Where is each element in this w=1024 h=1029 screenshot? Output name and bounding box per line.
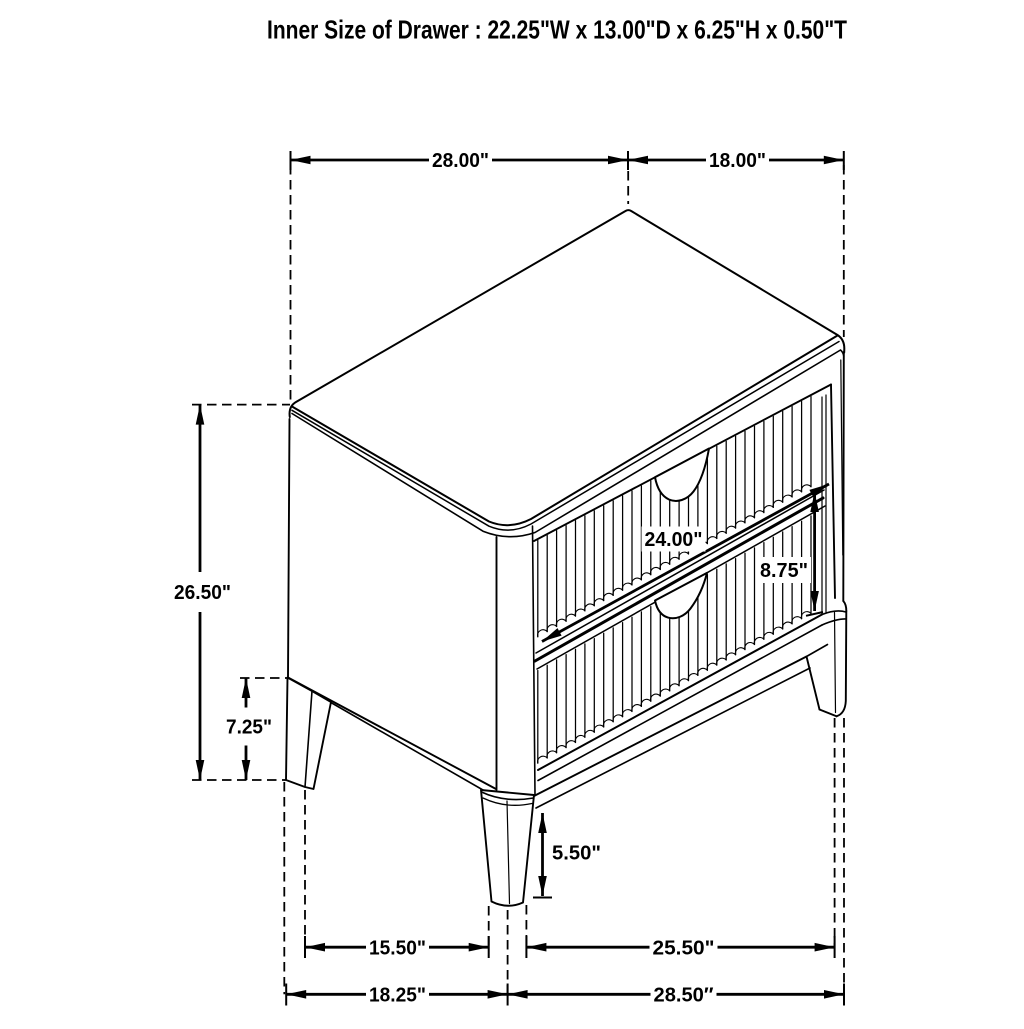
svg-text:24.00": 24.00" [645,528,703,551]
svg-text:28.50″: 28.50″ [654,984,714,1007]
svg-text:15.50": 15.50" [369,936,426,959]
svg-text:Inner Size of Drawer : 22.25"W: Inner Size of Drawer : 22.25"W x 13.00"D… [267,15,847,45]
svg-text:26.50": 26.50" [174,581,231,604]
svg-text:7.25": 7.25" [226,716,272,739]
svg-text:25.50": 25.50" [653,936,715,959]
svg-text:5.50": 5.50" [552,842,601,865]
svg-text:18.25": 18.25" [369,984,426,1007]
svg-text:28.00": 28.00" [432,149,489,172]
svg-text:8.75": 8.75" [760,559,808,582]
svg-text:18.00": 18.00" [709,149,766,172]
